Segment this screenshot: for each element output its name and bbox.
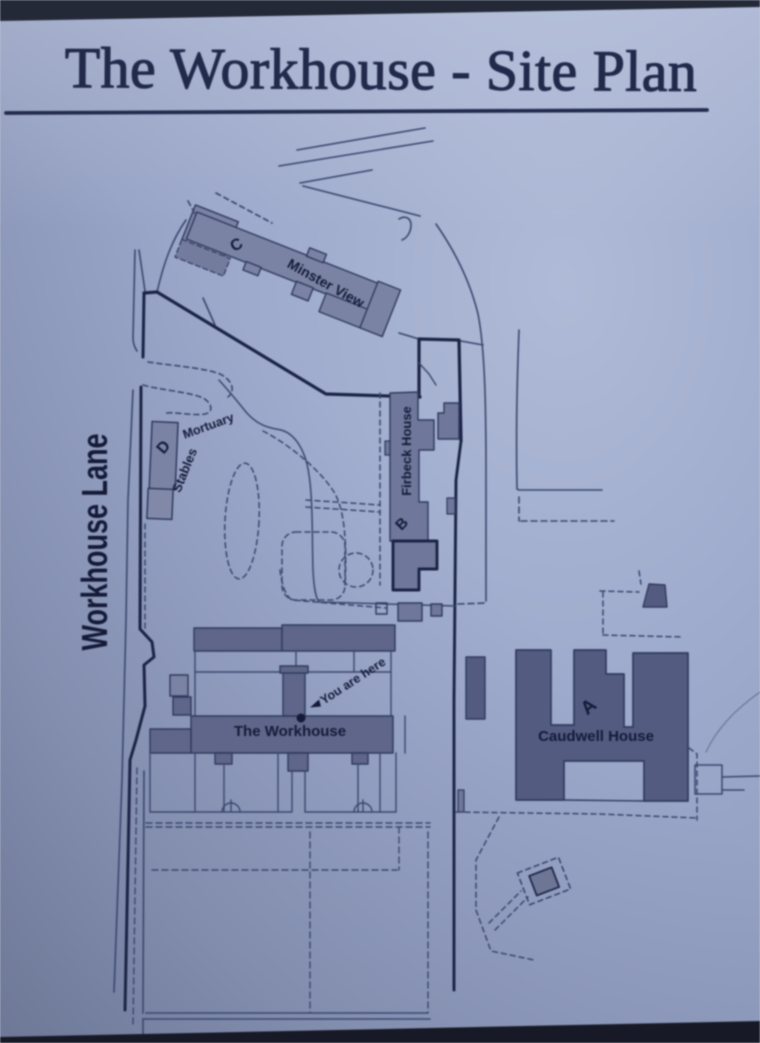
svg-text:The Workhouse: The Workhouse <box>234 723 346 740</box>
svg-text:Workhouse Lane: Workhouse Lane <box>74 434 115 651</box>
svg-text:The Workhouse - Site Plan: The Workhouse - Site Plan <box>65 35 698 104</box>
svg-text:Caudwell House: Caudwell House <box>538 728 654 745</box>
svg-text:Firbeck House: Firbeck House <box>399 406 414 496</box>
